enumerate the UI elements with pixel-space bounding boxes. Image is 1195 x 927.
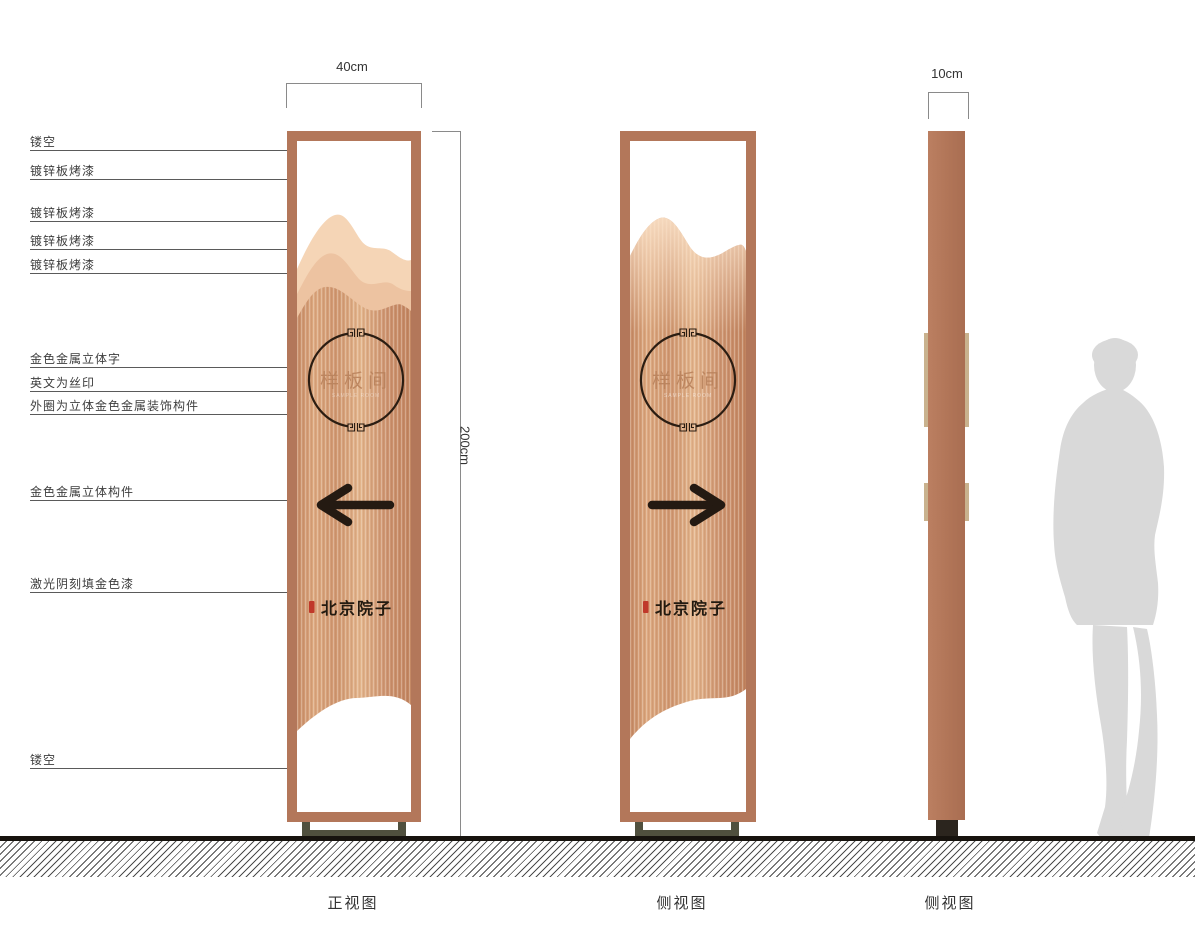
annotation-leader-line: [30, 768, 303, 769]
annotation-label-galvanized-1: 镀锌板烤漆: [30, 162, 95, 179]
annotation-label-outer-ring: 外圈为立体金色金属装饰构件: [30, 397, 199, 414]
annotation-leader-line: [30, 273, 292, 274]
emblem-text: 样板间: [320, 370, 392, 392]
side-view-panel: 样板间 SAMPLE ROOM 北京院子: [630, 141, 746, 812]
view-label-front: 正视图: [327, 892, 378, 913]
side-view-pillar: 样板间 SAMPLE ROOM 北京院子: [620, 131, 756, 822]
front-view-panel: 样板间 SAMPLE ROOM 北京院子: [297, 141, 411, 812]
annotation-leader-line: [30, 221, 325, 222]
annotation-leader-line: [30, 150, 307, 151]
annotation-leader-line: [30, 249, 303, 250]
dimension-depth-label: 10cm: [931, 66, 963, 81]
annotation-leader-line: [30, 367, 326, 368]
dimension-height-line: [460, 131, 461, 836]
brand-group: 北京院子: [643, 599, 727, 618]
brand-calligraphy: 北京院子: [655, 599, 727, 618]
human-silhouette: [1035, 335, 1180, 838]
annotation-label-laser-engraving: 激光阴刻填金色漆: [30, 575, 134, 592]
view-label-side-2: 侧视图: [924, 892, 975, 913]
dimension-width-label: 40cm: [336, 59, 368, 74]
annotation-label-gold-letters: 金色金属立体字: [30, 350, 121, 367]
annotation-label-galvanized-2: 镀锌板烤漆: [30, 204, 95, 221]
emblem-subtext: SAMPLE ROOM: [332, 393, 380, 399]
ground-hatch: [0, 841, 1195, 877]
annotation-leader-line: [30, 179, 288, 180]
annotation-leader-line: [30, 592, 291, 593]
panel-mist-highlight: [630, 218, 746, 739]
dimension-height-label: 200cm: [458, 421, 473, 471]
dimension-depth-bracket: [928, 92, 969, 119]
annotation-label-gold-component: 金色金属立体构件: [30, 483, 134, 500]
annotation-label-hollow-bottom: 镂空: [30, 751, 56, 768]
seal-stamp-icon: [643, 601, 649, 613]
brand-group: 北京院子: [309, 599, 393, 618]
annotation-leader-line: [30, 414, 318, 415]
annotation-label-silkscreen: 英文为丝印: [30, 374, 95, 391]
view-label-side-1: 侧视图: [656, 892, 707, 913]
annotation-label-hollow-top: 镂空: [30, 133, 56, 150]
side-profile-pillar: [928, 131, 965, 820]
annotation-label-galvanized-3: 镀锌板烤漆: [30, 232, 95, 249]
dimension-width-bracket: [286, 83, 422, 108]
emblem-subtext: SAMPLE ROOM: [664, 393, 712, 399]
brand-calligraphy: 北京院子: [321, 599, 393, 618]
seal-stamp-icon: [309, 601, 315, 613]
emblem-text: 样板间: [652, 370, 724, 392]
dimension-height-tick: [432, 131, 460, 132]
signage-design-drawing: 镂空 镀锌板烤漆 镀锌板烤漆 镀锌板烤漆 镀锌板烤漆 金色金属立体字 英文为丝印…: [0, 0, 1195, 927]
front-view-pillar: 样板间 SAMPLE ROOM 北京院子: [287, 131, 421, 822]
annotation-label-galvanized-4: 镀锌板烤漆: [30, 256, 95, 273]
